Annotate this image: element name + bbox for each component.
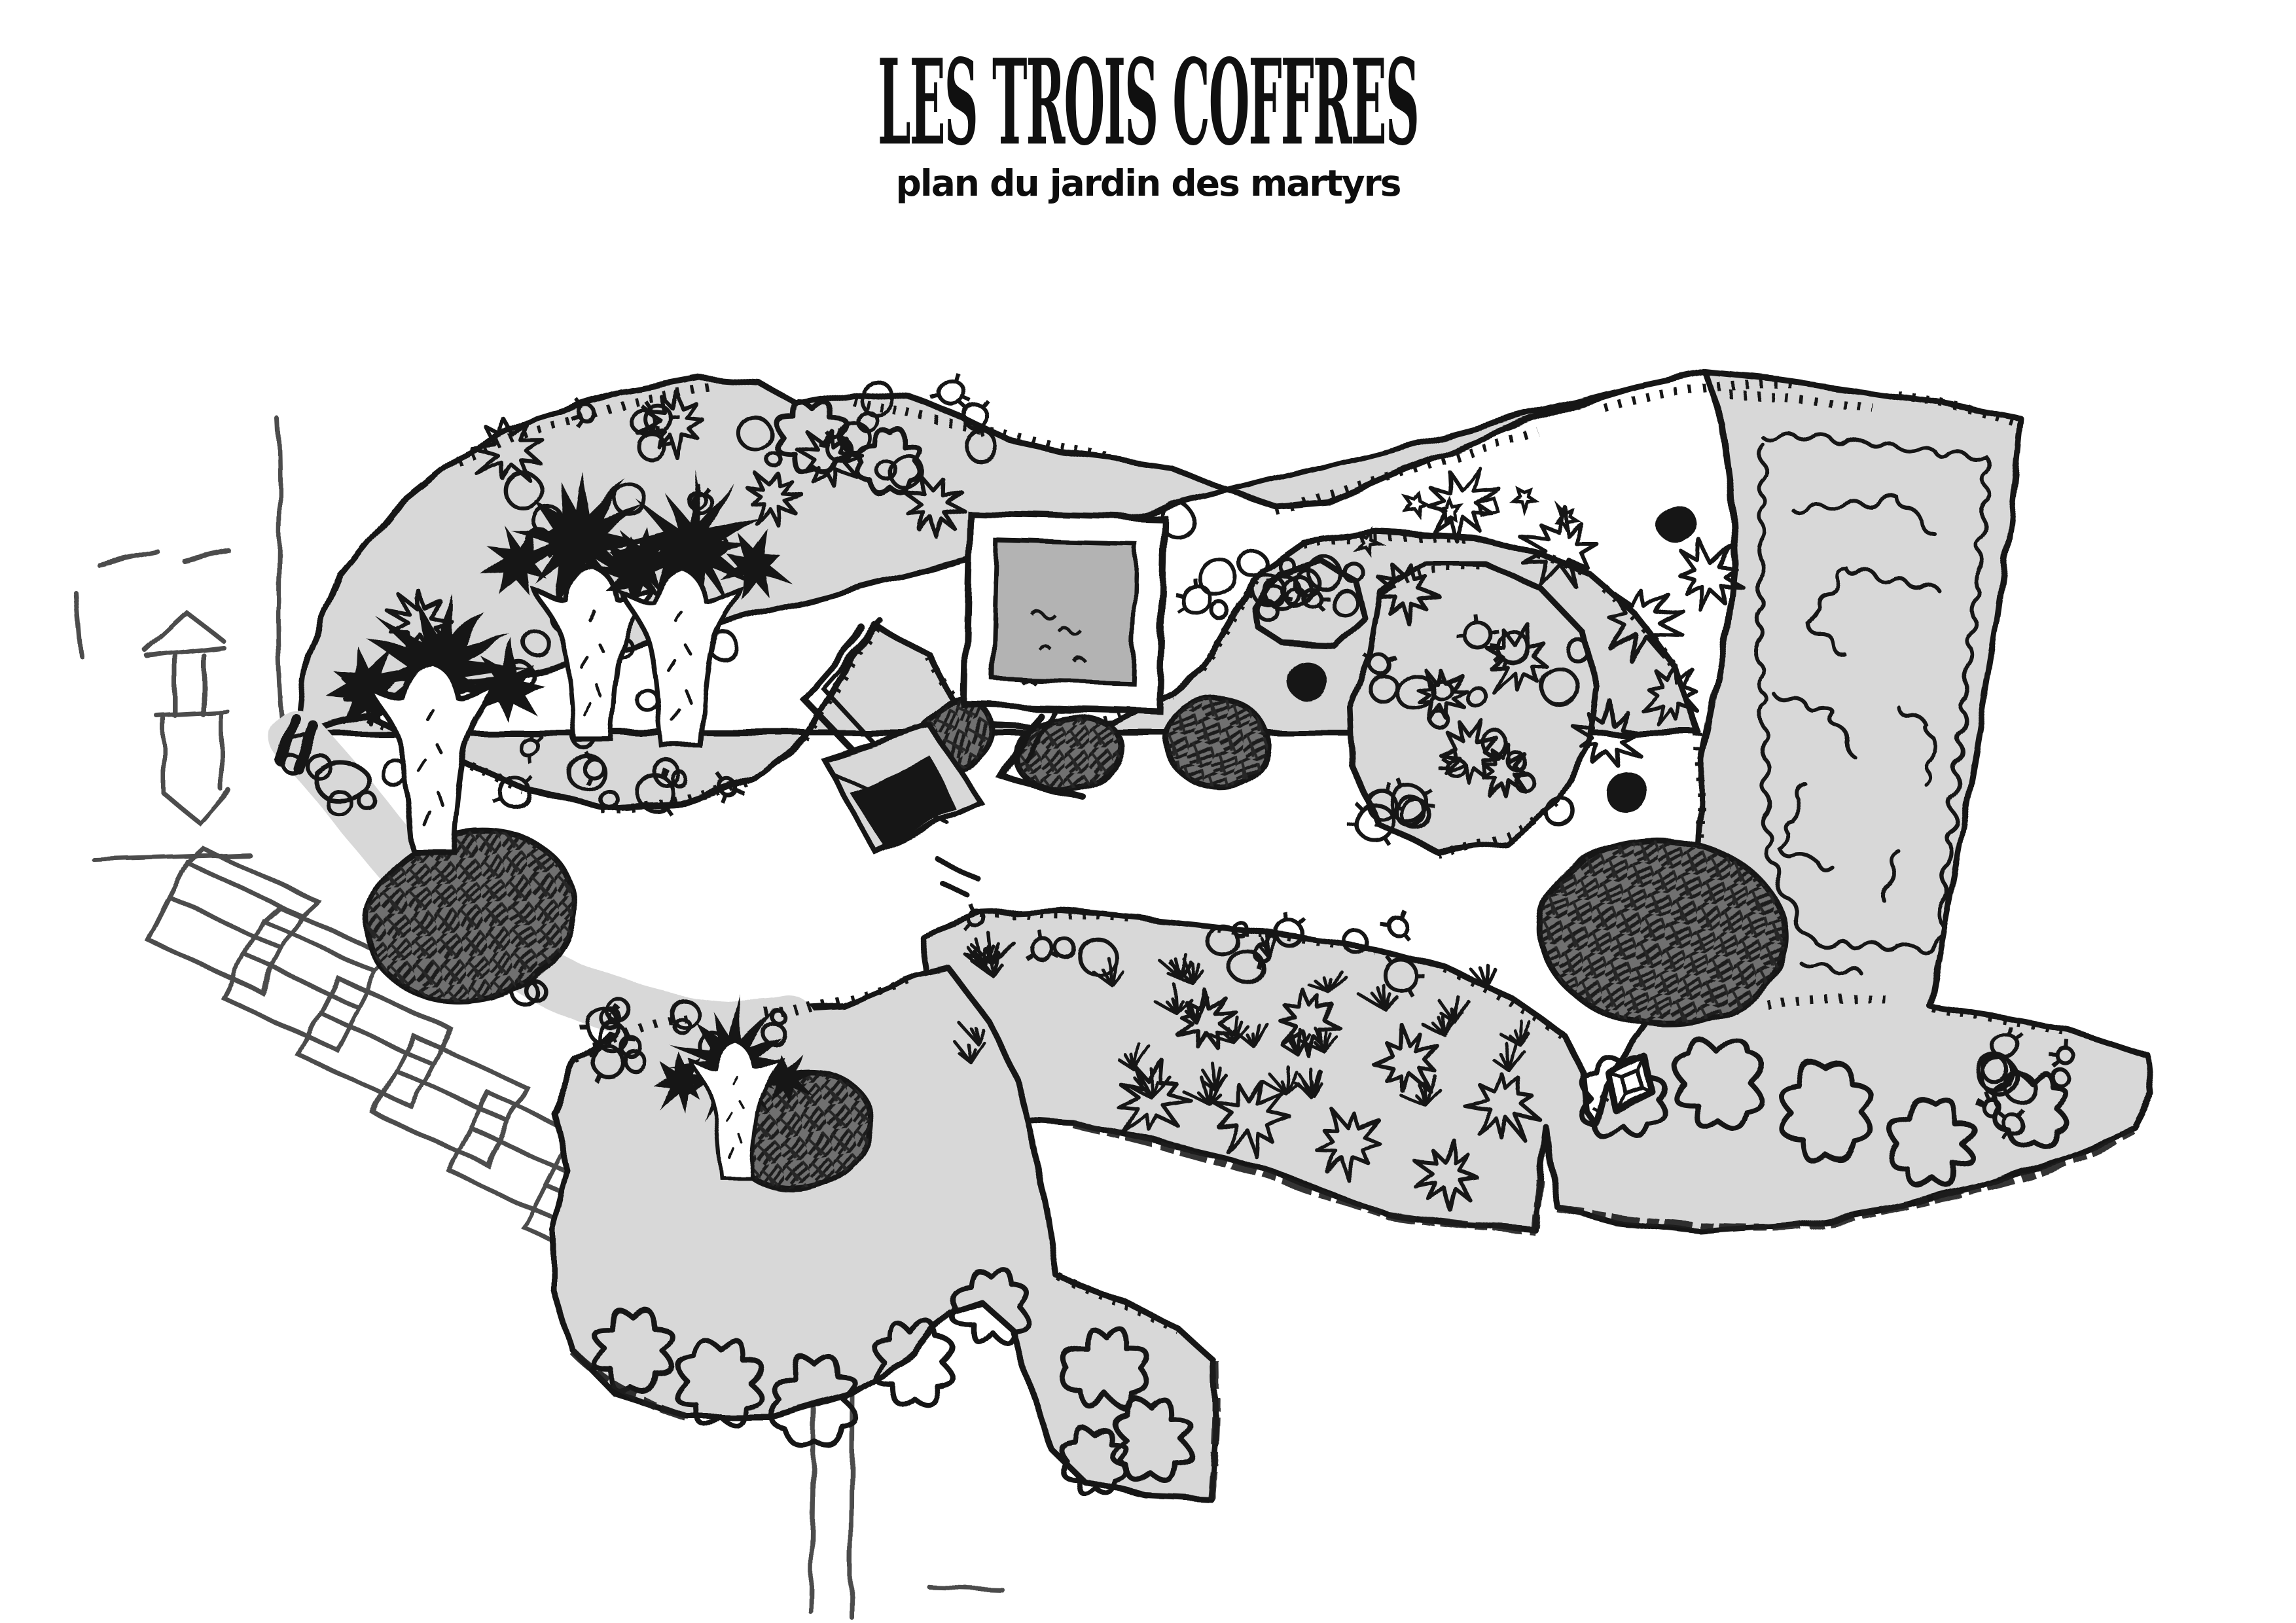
square-pond (965, 513, 1164, 711)
chest-1-dot (1288, 662, 1327, 702)
garden-map-illustration (0, 0, 2296, 1623)
corner-sketch-marks (77, 551, 157, 657)
chest-3-dot (1658, 505, 1697, 544)
chest-2-dot (1607, 772, 1649, 814)
garden-map-page: Les Trois Coffres plan du jardin des mar… (0, 0, 2296, 1623)
street-tail-lines (812, 1387, 1001, 1616)
street-line (278, 419, 283, 755)
lamp-tower-sketch (145, 551, 229, 823)
pond-water (993, 541, 1136, 683)
